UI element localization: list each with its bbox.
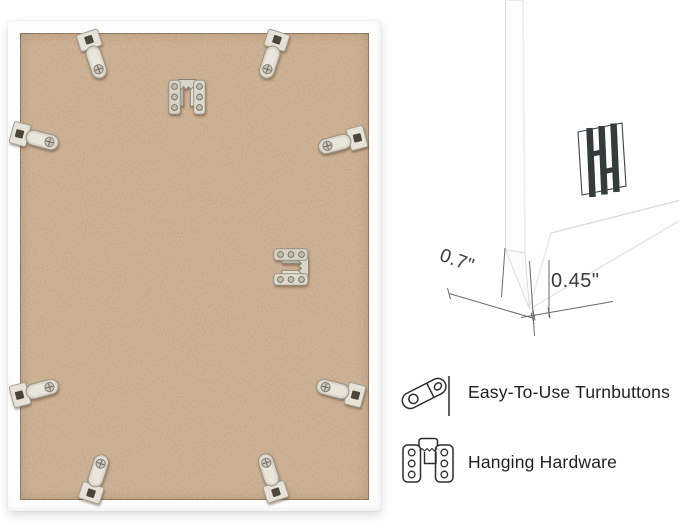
frame-back-photo [8,21,381,511]
depth-dimension-label: 0.7" [436,245,477,278]
hanging-hardware-icon [398,432,458,492]
mdf-backing [20,33,369,500]
product-image: 0.7" 0.45" Easy-To-Use Turnbuttons [0,0,679,523]
turnbutton-icon [396,363,454,421]
feature-label: Hanging Hardware [468,452,617,473]
feature-turnbuttons: Easy-To-Use Turnbuttons [396,363,670,421]
frame-side [506,0,526,253]
face-dimension-label: 0.45" [551,270,600,293]
frame-face [523,0,679,309]
feature-label: Easy-To-Use Turnbuttons [468,382,670,403]
mdf-texture [20,33,369,500]
feature-hanging-hardware: Hanging Hardware [398,432,617,492]
frame-corner-tip [506,250,530,309]
brand-logo-hh-icon [578,123,626,197]
